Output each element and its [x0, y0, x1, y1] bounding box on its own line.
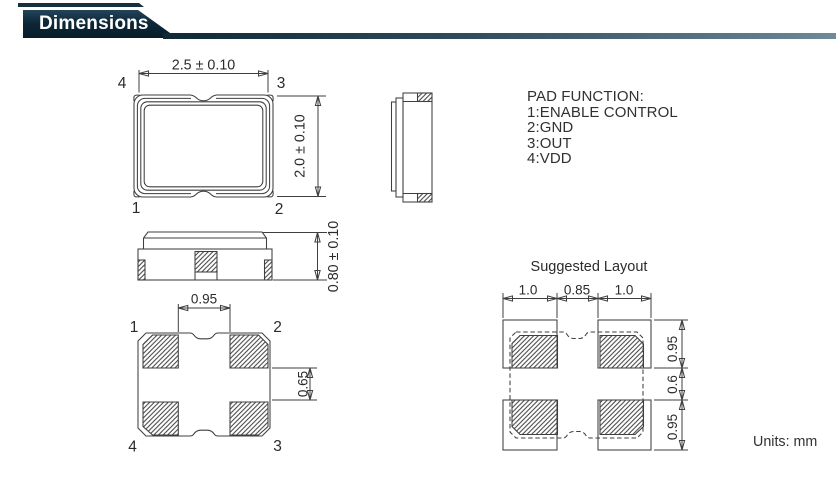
pad-3-hatch — [230, 402, 268, 435]
pin-label: 3 — [273, 438, 282, 455]
pin-label: 4 — [128, 439, 137, 456]
package-outline — [134, 95, 273, 197]
datasheet-page: { "header": { "title": "Dimensions" }, "… — [0, 0, 838, 487]
side-view-left — [392, 93, 433, 202]
bottom-view: 0.95 0.65 1 2 4 3 — [128, 292, 317, 456]
width-dim-label: 2.5 ± 0.10 — [172, 58, 236, 74]
lid-outline — [144, 232, 267, 249]
pin-label: 1 — [130, 319, 139, 336]
package-inner-line — [141, 102, 266, 190]
package-inner-line — [137, 98, 269, 193]
lid-edge — [392, 102, 397, 191]
pad-4-hatch — [143, 402, 178, 435]
pin-label: 2 — [273, 319, 282, 336]
side-pad-hatch — [265, 260, 273, 280]
cavity-outline — [144, 105, 263, 187]
component-pad-hatch — [600, 336, 644, 369]
dimensions-drawing: 2.5 ± 0.10 2.0 ± 0.10 4 3 1 2 0.80 ± — [0, 0, 838, 487]
pad-hatch — [418, 194, 433, 203]
layout-v-dim-label: 0.95 — [665, 336, 680, 362]
height-dim-label: 0.80 ± 0.10 — [326, 221, 342, 292]
component-pad-hatch — [600, 400, 644, 435]
pad-1-hatch — [143, 335, 178, 368]
body-outline — [403, 93, 432, 202]
pad-offset-dim-label: 0.65 — [296, 371, 311, 397]
layout-v-dim-label: 0.95 — [665, 414, 680, 440]
layout-h-dim-label: 1.0 — [615, 283, 634, 298]
component-pad-hatch — [512, 400, 558, 435]
side-view-front: 0.80 ± 0.10 — [138, 221, 342, 292]
pad-gap-dim-label: 0.95 — [191, 292, 217, 307]
side-pad-hatch — [138, 260, 145, 280]
top-view: 2.5 ± 0.10 2.0 ± 0.10 4 3 1 2 — [118, 58, 326, 219]
suggested-layout: Suggested Layout 1.0 0.85 1.0 0.95 0.6 — [503, 259, 688, 450]
layout-h-dim-label: 0.85 — [564, 283, 590, 298]
pin-label: 3 — [277, 75, 286, 92]
height-dim-label: 2.0 ± 0.10 — [293, 114, 309, 178]
layout-h-dim-label: 1.0 — [519, 283, 538, 298]
suggested-layout-title: Suggested Layout — [531, 259, 648, 275]
pin-label: 2 — [275, 201, 284, 218]
pad-hatch — [418, 93, 433, 102]
component-pad-hatch — [512, 336, 558, 369]
center-pad-hatch — [195, 252, 217, 273]
layout-v-dim-label: 0.6 — [665, 375, 680, 394]
pin-label: 4 — [118, 75, 127, 92]
pad-2-hatch — [230, 335, 268, 368]
lid-edge — [396, 98, 403, 197]
pin-label: 1 — [132, 200, 141, 217]
